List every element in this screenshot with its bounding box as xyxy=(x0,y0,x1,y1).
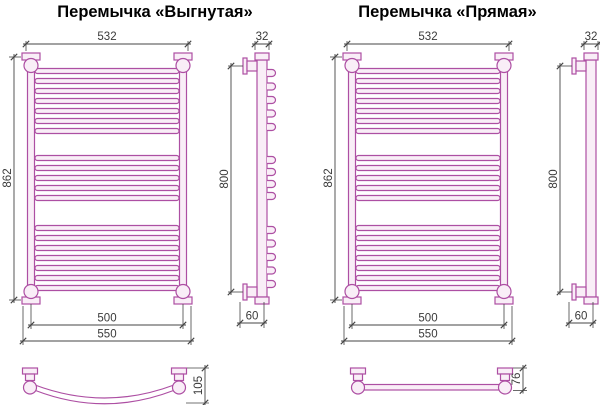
dim-label-front-height-right: 862 xyxy=(323,168,335,187)
crossbar xyxy=(356,196,500,201)
detail-collar xyxy=(26,374,35,381)
crossbar xyxy=(356,69,500,74)
detail-collar xyxy=(501,374,510,381)
side-collector-tube xyxy=(586,60,596,297)
crossbar xyxy=(356,246,500,251)
crossbar xyxy=(356,89,500,94)
rail-tube xyxy=(180,60,187,297)
crossbar-loop xyxy=(267,124,276,131)
curved-bar-outer xyxy=(35,385,174,398)
wall-bracket-body xyxy=(247,61,257,71)
detail-collar xyxy=(175,374,184,381)
crossbar-loop xyxy=(267,157,276,164)
crossbar-loop xyxy=(267,169,276,176)
rail-tube xyxy=(349,60,356,297)
corner-union-bottom xyxy=(497,285,511,299)
rail-tube xyxy=(28,60,35,297)
detail-wall-flange xyxy=(23,368,38,374)
detail-curved-crossbar xyxy=(23,368,187,404)
side-view-straight-model xyxy=(572,53,598,304)
crossbar xyxy=(35,196,179,201)
straight-bar xyxy=(364,385,499,391)
crossbar xyxy=(356,236,500,241)
crossbar xyxy=(35,89,179,94)
crossbar xyxy=(35,276,179,281)
crossbar xyxy=(35,226,179,231)
side-top-cap xyxy=(255,53,269,60)
crossbar xyxy=(35,129,179,134)
crossbar-loop xyxy=(267,70,276,77)
wall-bracket-body xyxy=(576,287,586,297)
dim-label-side-bottom-right: 60 xyxy=(575,311,588,323)
detail-union-joint xyxy=(24,381,37,394)
dim-label-side-height-right: 800 xyxy=(548,169,560,188)
dim-label-outer-width-right: 550 xyxy=(418,329,437,341)
crossbar-loop xyxy=(267,181,276,188)
dim-label-side-bottom-left: 60 xyxy=(246,311,259,323)
crossbar xyxy=(356,266,500,271)
crossbar xyxy=(35,79,179,84)
side-bottom-cap xyxy=(255,297,269,304)
crossbar-loop xyxy=(267,193,276,200)
crossbar xyxy=(35,156,179,161)
crossbar xyxy=(35,166,179,171)
crossbar xyxy=(35,99,179,104)
dim-label-front-height-left: 862 xyxy=(2,168,14,187)
side-bottom-cap xyxy=(584,297,598,304)
crossbar-loop xyxy=(267,83,276,90)
corner-union-bottom xyxy=(24,285,38,299)
crossbar xyxy=(356,156,500,161)
front-view-straight-model xyxy=(343,53,513,304)
crossbar-loop xyxy=(267,254,276,261)
crossbar-loop xyxy=(267,97,276,104)
rail-tube xyxy=(501,60,508,297)
side-view-curved-model xyxy=(243,53,276,304)
side-collector-tube xyxy=(257,60,267,297)
corner-union-top xyxy=(176,59,190,73)
crossbar xyxy=(356,286,500,291)
detail-union-joint xyxy=(352,381,365,394)
crossbar-loop xyxy=(267,227,276,234)
drawing-page: Перемычка «Выгнутая» Перемычка «Прямая» … xyxy=(0,0,600,405)
wall-bracket-flange xyxy=(243,58,247,74)
crossbar xyxy=(356,166,500,171)
dim-label-straight-depth: 76 xyxy=(511,373,523,386)
crossbar xyxy=(35,176,179,181)
crossbar xyxy=(356,186,500,191)
crossbar xyxy=(356,276,500,281)
corner-union-top xyxy=(497,59,511,73)
wall-bracket-flange xyxy=(243,284,247,300)
crossbar xyxy=(356,119,500,124)
crossbar xyxy=(356,176,500,181)
dim-label-inner-width-right: 500 xyxy=(418,313,437,325)
curved-bar-inner xyxy=(36,391,174,404)
crossbar xyxy=(356,109,500,114)
technical-drawing-canvas: 532 862 500 550 32 800 60 105 532 862 50… xyxy=(0,0,600,405)
crossbar xyxy=(35,119,179,124)
wall-bracket-body xyxy=(247,287,257,297)
dim-label-top-width-right: 532 xyxy=(418,31,437,43)
wall-bracket-body xyxy=(576,61,586,71)
crossbar-loop xyxy=(267,267,276,274)
crossbar xyxy=(356,79,500,84)
dim-label-top-width-left: 532 xyxy=(97,31,116,43)
detail-union-joint xyxy=(499,381,512,394)
corner-union-top xyxy=(345,59,359,73)
crossbar xyxy=(356,129,500,134)
side-top-cap xyxy=(584,53,598,60)
crossbar xyxy=(35,246,179,251)
crossbar-loop xyxy=(267,240,276,247)
crossbar xyxy=(35,69,179,74)
crossbar xyxy=(35,286,179,291)
crossbar xyxy=(35,186,179,191)
dim-label-outer-width-left: 550 xyxy=(97,329,116,341)
detail-union-joint xyxy=(173,381,186,394)
crossbar xyxy=(35,236,179,241)
dim-label-inner-width-left: 500 xyxy=(97,313,116,325)
crossbar xyxy=(356,226,500,231)
crossbar xyxy=(356,99,500,104)
corner-union-bottom xyxy=(345,285,359,299)
dimension-annotations: 532 862 500 550 32 800 60 105 532 862 50… xyxy=(2,31,600,405)
front-view-curved-model xyxy=(22,53,192,304)
corner-union-bottom xyxy=(176,285,190,299)
dim-label-curved-depth: 105 xyxy=(193,376,205,395)
crossbar xyxy=(35,256,179,261)
detail-wall-flange xyxy=(351,368,366,374)
corner-union-top xyxy=(24,59,38,73)
detail-straight-crossbar xyxy=(351,368,513,394)
detail-collar xyxy=(354,374,363,381)
dim-label-side-height-left: 800 xyxy=(219,169,231,188)
crossbar-loop xyxy=(267,110,276,117)
crossbar xyxy=(356,256,500,261)
crossbar xyxy=(35,109,179,114)
detail-wall-flange xyxy=(172,368,187,374)
crossbar-loop xyxy=(267,281,276,288)
crossbar xyxy=(35,266,179,271)
